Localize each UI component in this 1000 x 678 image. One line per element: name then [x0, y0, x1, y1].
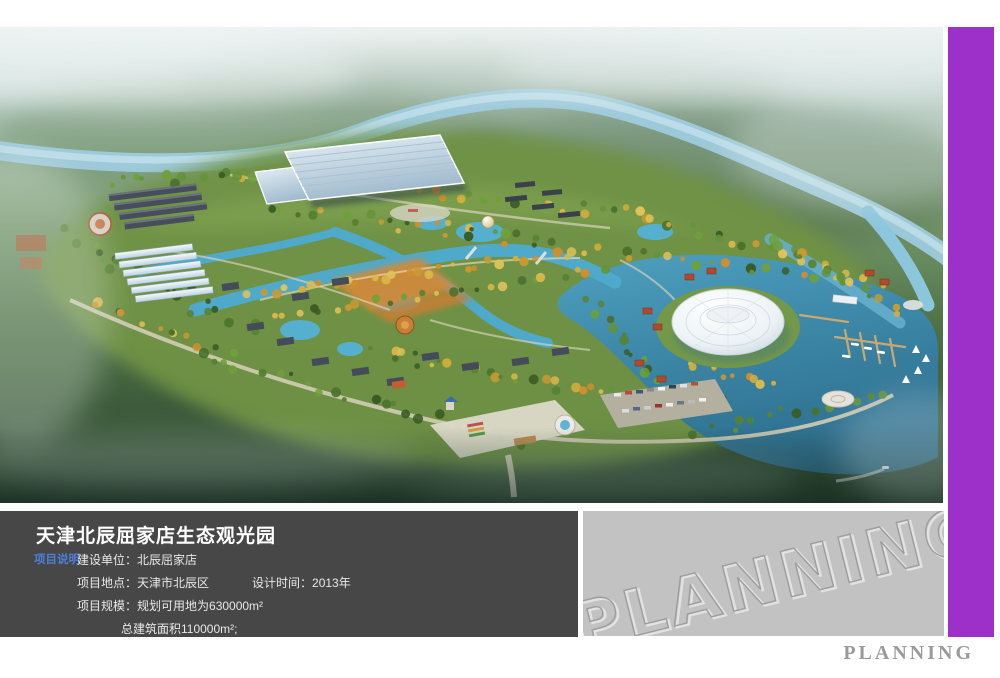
- section-label: 项目说明: [34, 551, 80, 567]
- design-time-label: 设计时间：: [252, 576, 312, 590]
- project-info-panel: 天津北辰屈家店生态观光园 项目说明 建设单位：北辰屈家店 项目地点：天津市北辰区…: [0, 511, 578, 637]
- location-label: 项目地点：: [77, 576, 137, 590]
- location-row: 项目地点：天津市北辰区: [77, 574, 209, 591]
- scale-row-2: 总建筑面积110000m²;: [121, 620, 237, 637]
- accent-bar: [948, 27, 994, 637]
- builder-value: 北辰屈家店: [137, 553, 197, 567]
- dome-conservatory: [656, 286, 800, 368]
- location-value: 天津市北辰区: [137, 576, 209, 590]
- builder-label: 建设单位：: [77, 553, 137, 567]
- scale-value-2: 总建筑面积110000m²;: [121, 622, 237, 636]
- scale-label: 项目规模：: [77, 599, 137, 613]
- watermark-svg: PLANNING PLANNING: [583, 511, 944, 636]
- project-title: 天津北辰屈家店生态观光园: [36, 521, 276, 548]
- scale-value: 规划可用地为630000m²: [137, 599, 263, 613]
- watermark-panel: PLANNING PLANNING: [583, 511, 944, 636]
- builder-row: 建设单位：北辰屈家店: [77, 551, 197, 568]
- aerial-rendering: [0, 27, 943, 503]
- scale-row: 项目规模：规划可用地为630000m²: [77, 597, 263, 614]
- watermark-text: PLANNING: [583, 511, 944, 636]
- design-time-row: 设计时间：2013年: [252, 574, 351, 591]
- design-time-value: 2013年: [312, 576, 351, 590]
- presentation-board: 天津北辰屈家店生态观光园 项目说明 建设单位：北辰屈家店 项目地点：天津市北辰区…: [0, 0, 1000, 678]
- aerial-rendering-svg: [0, 27, 943, 503]
- footer-brand-text: PLANNING: [843, 642, 974, 665]
